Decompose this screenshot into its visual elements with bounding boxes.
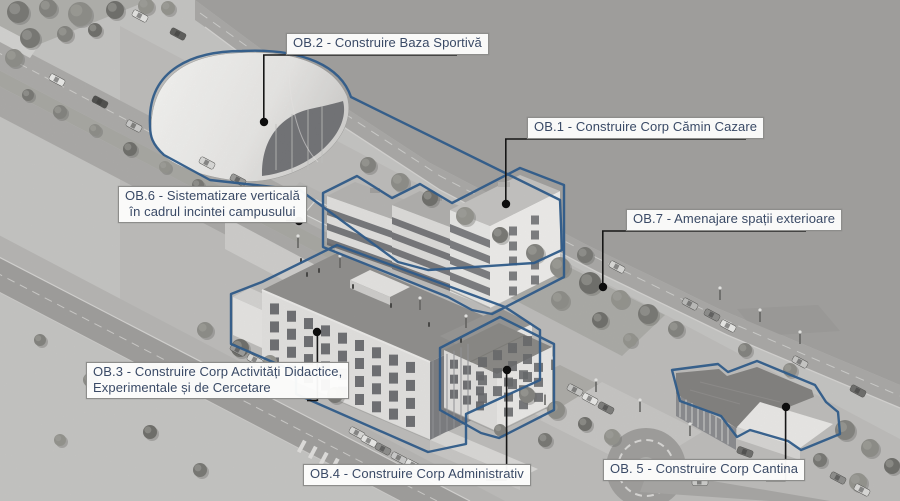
leader-dot-ob3 xyxy=(313,328,321,336)
leader-dot-ob1 xyxy=(502,200,510,208)
label-ob3: OB.3 - Construire Corp Activități Didact… xyxy=(86,362,349,399)
leader-dot-ob4 xyxy=(503,366,511,374)
leader-dot-ob7 xyxy=(599,283,607,291)
label-ob6-line1: OB.6 - Sistematizare verticală xyxy=(125,188,300,204)
label-ob6: OB.6 - Sistematizare verticală în cadrul… xyxy=(118,186,307,223)
label-ob4: OB.4 - Construire Corp Administrativ xyxy=(303,464,531,486)
label-ob7: OB.7 - Amenajare spații exterioare xyxy=(626,209,842,231)
label-ob1-text: OB.1 - Construire Corp Cămin Cazare xyxy=(534,119,757,136)
label-ob1: OB.1 - Construire Corp Cămin Cazare xyxy=(527,117,764,139)
label-ob2-text: OB.2 - Construire Baza Sportivă xyxy=(293,35,482,52)
label-ob2: OB.2 - Construire Baza Sportivă xyxy=(286,33,489,55)
label-ob7-text: OB.7 - Amenajare spații exterioare xyxy=(633,211,835,228)
texture-overlay xyxy=(0,0,900,501)
label-ob6-line2: în cadrul incintei campusului xyxy=(125,204,300,220)
leader-dot-ob2 xyxy=(260,118,268,126)
campus-scene xyxy=(0,0,900,501)
label-ob3-line1: OB.3 - Construire Corp Activități Didact… xyxy=(93,364,342,380)
site-plan-rendering: OB.2 - Construire Baza Sportivă OB.1 - C… xyxy=(0,0,900,501)
label-ob3-line2: Experimentale și de Cercetare xyxy=(93,380,342,396)
label-ob5: OB. 5 - Construire Corp Cantina xyxy=(603,459,805,481)
label-ob5-text: OB. 5 - Construire Corp Cantina xyxy=(610,461,798,478)
label-ob4-text: OB.4 - Construire Corp Administrativ xyxy=(310,466,524,483)
leader-dot-ob5 xyxy=(782,403,790,411)
